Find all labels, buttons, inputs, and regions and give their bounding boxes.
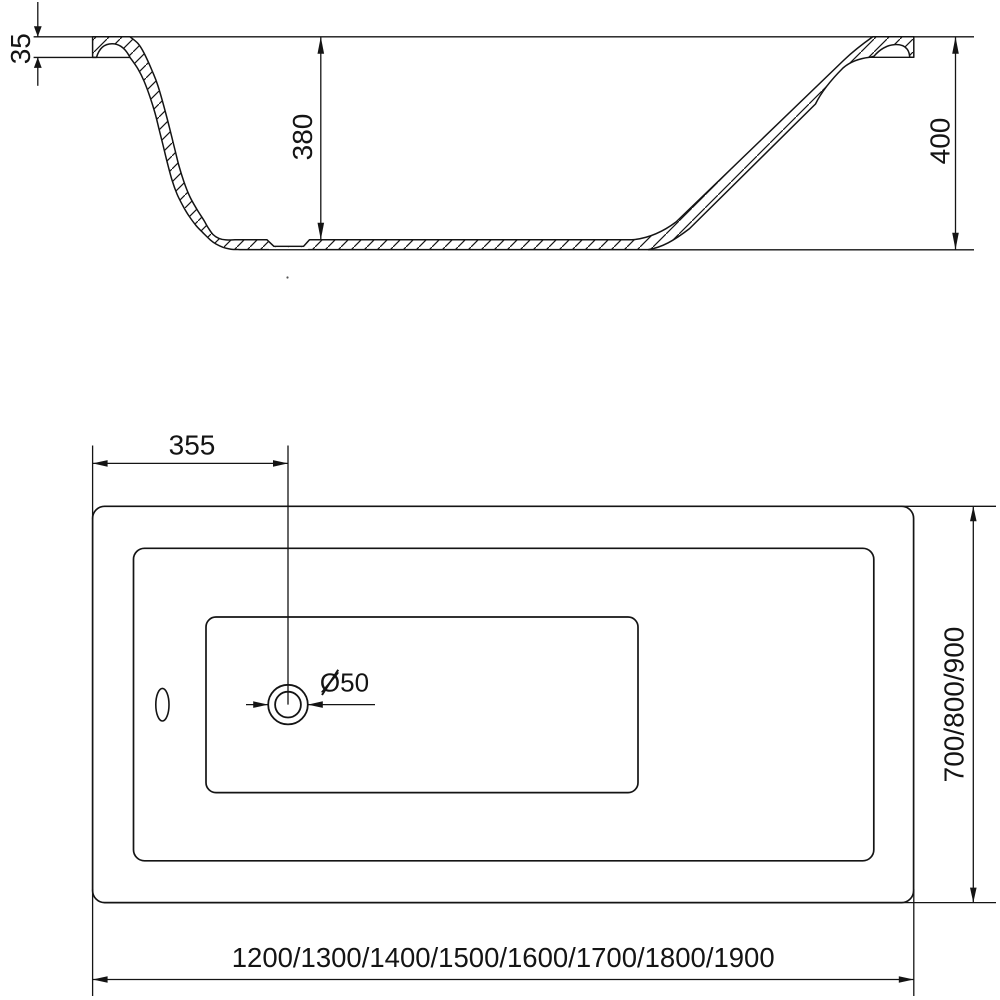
svg-text:355: 355 xyxy=(169,430,216,461)
svg-text:1200/1300/1400/1500/1600/1700/: 1200/1300/1400/1500/1600/1700/1800/1900 xyxy=(232,942,775,973)
svg-text:700/800/900: 700/800/900 xyxy=(939,627,970,783)
svg-text:400: 400 xyxy=(925,118,956,165)
svg-text:35: 35 xyxy=(5,33,36,64)
svg-text:380: 380 xyxy=(287,114,318,161)
svg-text:Ø50: Ø50 xyxy=(320,668,369,698)
